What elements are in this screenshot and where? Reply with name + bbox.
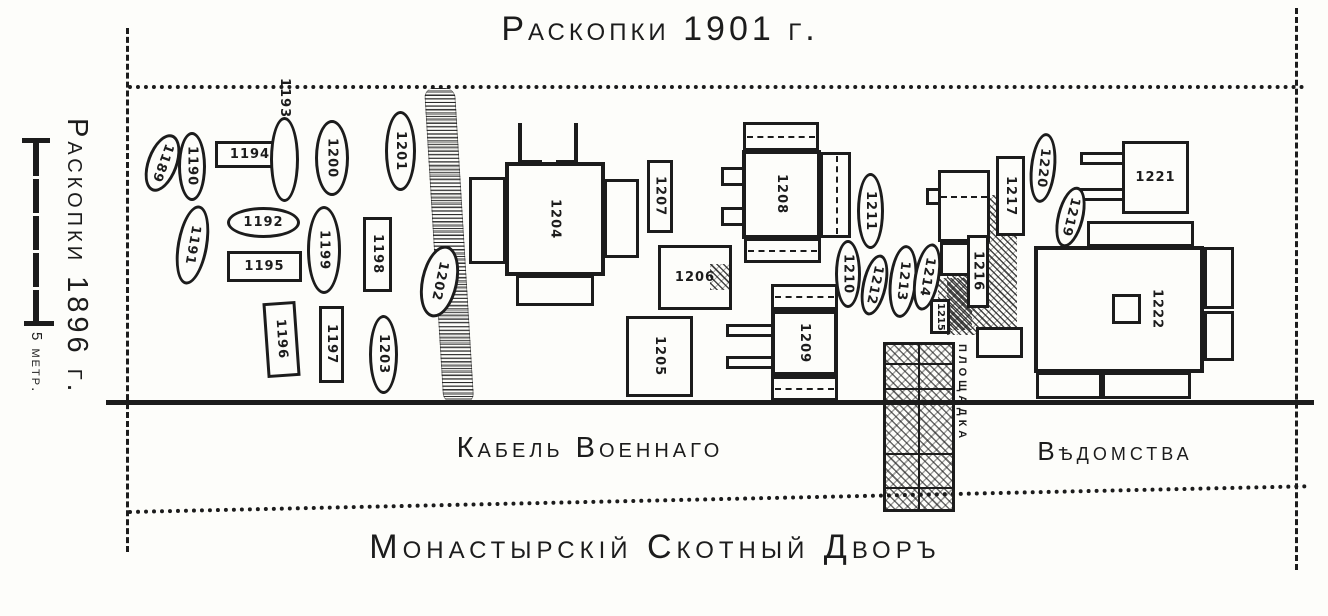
feature-1208-part [721, 207, 743, 226]
feature-1208-part [747, 136, 815, 138]
feature-number: 1213 [894, 261, 911, 302]
feature-number: 1203 [377, 334, 390, 374]
feature-number: 1219 [1059, 196, 1081, 238]
feature-number: 1209 [798, 323, 811, 363]
feature-1208-part [836, 156, 838, 234]
feature-1209-part [726, 356, 772, 369]
feature-1204: 1204 [505, 162, 605, 276]
feature-1222-part [1112, 294, 1141, 324]
feature-1222-part [1204, 247, 1234, 309]
feature-number: 1221 [1135, 171, 1175, 184]
feature-1216: 1216 [967, 235, 989, 308]
feature-number: 1204 [549, 199, 562, 239]
feature-number: 1199 [318, 230, 331, 270]
feature-1222-part [1102, 372, 1191, 399]
feature-number: 1196 [274, 319, 290, 360]
feature-1204-part [556, 123, 578, 164]
excavation-plan: Раскопки 1901 г. Раскопки 1896 г. 5 метр… [0, 0, 1328, 616]
feature-1190: 1190 [178, 132, 206, 201]
feature-1204-part [604, 179, 639, 258]
feature-number: 1212 [864, 264, 885, 306]
feature-number: 1202 [429, 260, 450, 302]
feature-number: 1211 [864, 191, 877, 231]
features-layer: 1204120812091222120512061221119411951196… [0, 0, 1328, 616]
feature-number: 1214 [917, 256, 937, 298]
feature-1209: 1209 [771, 310, 838, 376]
feature-number: 1192 [243, 216, 283, 229]
cable-line-solid [106, 400, 1314, 405]
feature-annex-part [976, 327, 1023, 358]
feature-1222-part [1036, 372, 1102, 399]
feature-1209-part [775, 296, 834, 298]
feature-1215: 1215 [930, 299, 950, 334]
feature-1221-part [1080, 152, 1123, 165]
feature-1208-part [748, 250, 817, 252]
feature-number: 1191 [183, 224, 203, 266]
feature-1198: 1198 [363, 217, 392, 292]
feature-1200: 1200 [315, 120, 349, 196]
feature-1204-part [469, 177, 506, 264]
feature-1197: 1197 [319, 306, 344, 383]
feature-number: 1205 [653, 336, 666, 376]
feature-1212: 1212 [856, 252, 893, 318]
feature-number: 1222 [1151, 289, 1164, 329]
feature-annex-part [940, 242, 970, 276]
feature-number: 1208 [775, 174, 788, 214]
feature-number: 1216 [972, 251, 985, 291]
feature-number: 1200 [326, 138, 339, 178]
feature-1220: 1220 [1026, 132, 1059, 204]
feature-1209-part [726, 324, 772, 337]
feature-1202: 1202 [414, 242, 465, 321]
feature-1205: 1205 [626, 316, 693, 397]
feature-annex-part [926, 188, 939, 205]
feature-1211: 1211 [857, 173, 884, 249]
feature-1217: 1217 [996, 156, 1025, 236]
feature-number: 1195 [244, 260, 284, 273]
feature-1207: 1207 [647, 160, 673, 233]
feature-1209-part [775, 388, 834, 390]
feature-1208-part [721, 167, 743, 186]
feature-number: 1193 [278, 78, 291, 118]
feature-number: 1198 [371, 234, 384, 274]
feature-number: 1190 [186, 146, 199, 186]
feature-1204-part [516, 275, 594, 306]
feature-1221: 1221 [1122, 141, 1189, 214]
feature-1222-part [1204, 311, 1234, 361]
feature-1210: 1210 [835, 240, 861, 308]
feature-1206-part [710, 264, 730, 290]
feature-number: 1201 [394, 131, 407, 171]
feature-1221-part [1080, 188, 1123, 201]
feature-number: 1210 [842, 254, 855, 294]
feature-1193: 1193 [270, 117, 299, 202]
feature-1195: 1195 [227, 251, 302, 282]
feature-1191: 1191 [170, 203, 214, 287]
feature-1208: 1208 [742, 150, 821, 239]
feature-annex-part [938, 170, 990, 242]
feature-number: 1189 [150, 142, 176, 184]
feature-1201: 1201 [385, 111, 416, 191]
platform-label: ПЛОЩАДКА [956, 344, 968, 484]
feature-1196: 1196 [262, 301, 300, 378]
feature-annex-part [941, 196, 987, 198]
feature-1199: 1199 [307, 206, 341, 294]
feature-number: 1220 [1034, 147, 1051, 188]
feature-number: 1194 [230, 148, 270, 161]
feature-number: 1215 [935, 303, 945, 331]
feature-1203: 1203 [369, 315, 398, 394]
feature-1222-part [1087, 221, 1194, 247]
feature-number: 1197 [325, 324, 338, 364]
feature-number: 1207 [654, 176, 667, 216]
feature-1204-part [518, 123, 542, 164]
feature-number: 1217 [1004, 176, 1017, 216]
feature-1192: 1192 [227, 207, 300, 238]
